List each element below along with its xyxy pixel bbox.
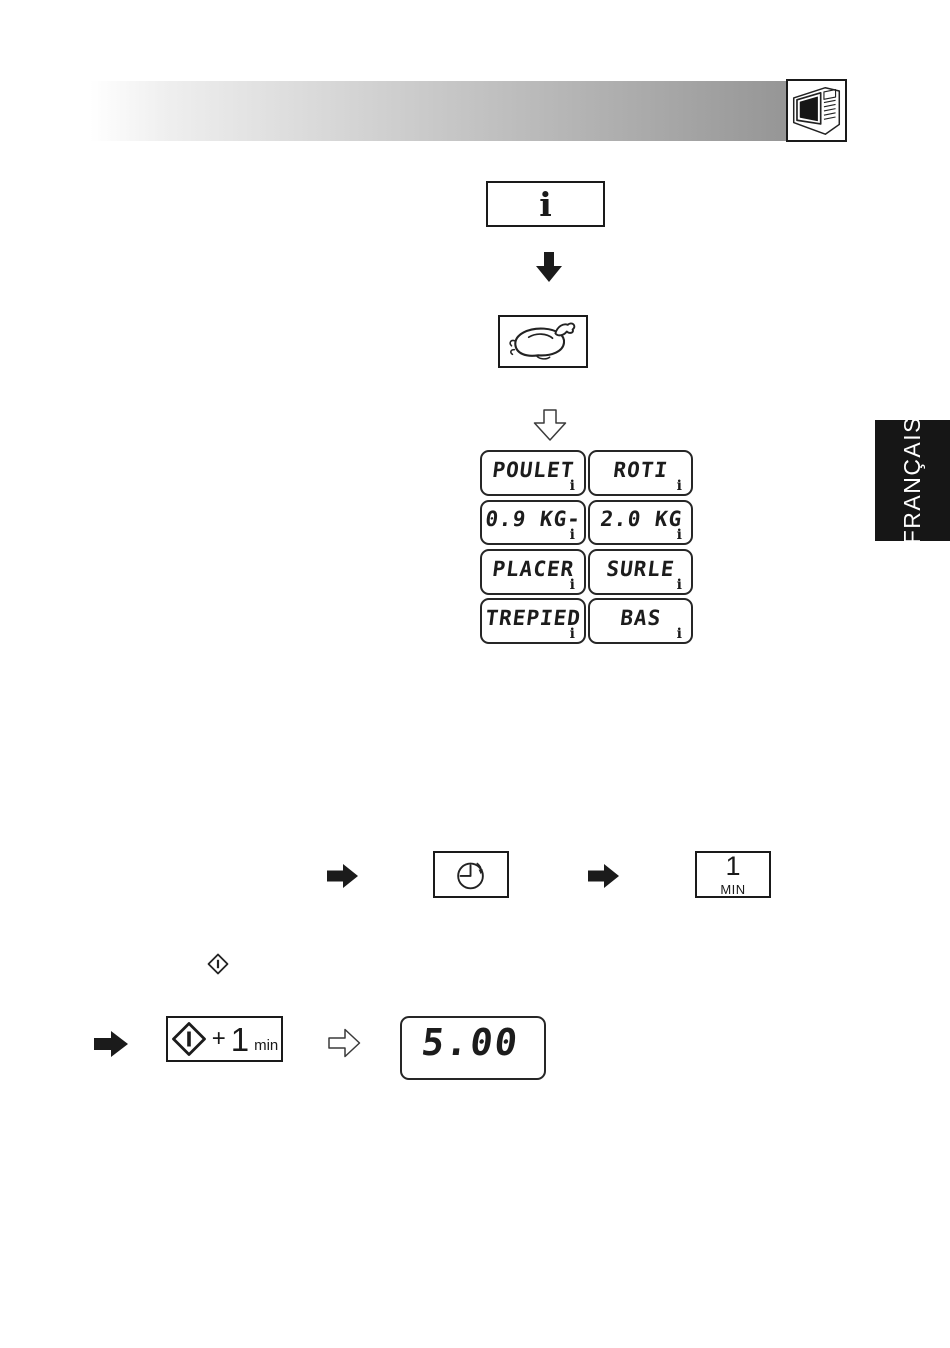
clock-icon — [452, 856, 490, 894]
lcd-text: TREPIED — [483, 606, 582, 637]
lcd-cell-weight-max: 2.0 KG i — [588, 500, 693, 545]
info-indicator: i — [677, 528, 682, 543]
info-indicator: i — [677, 578, 682, 593]
info-indicator: i — [570, 627, 575, 642]
microwave-icon — [790, 83, 843, 138]
one-min-unit: MIN — [720, 883, 745, 896]
lcd-text: POULET — [490, 458, 576, 489]
info-indicator: i — [570, 578, 575, 593]
roast-chicken-icon — [502, 318, 584, 365]
info-indicator: i — [677, 479, 682, 494]
lcd-text: PLACER — [490, 557, 576, 588]
lcd-cell-poulet: POULET i — [480, 450, 586, 496]
plus-amount: 1 — [231, 1023, 249, 1056]
time-display-box: 5.00 — [400, 1016, 546, 1080]
info-indicator: i — [570, 528, 575, 543]
timer-button-box — [433, 851, 509, 898]
lcd-text: SURLE — [604, 557, 676, 588]
lcd-cell-trepied: TREPIED i — [480, 598, 586, 644]
lcd-text: BAS — [618, 606, 663, 637]
start-diamond-icon — [207, 953, 229, 975]
lcd-text: 2.0 KG — [598, 507, 684, 538]
manual-page: i POULET i ROTI i 0.9 KG- — [0, 0, 950, 1348]
arrow-right-solid-icon — [94, 1031, 128, 1057]
microwave-icon-box — [786, 79, 847, 142]
lcd-text: ROTI — [611, 458, 669, 489]
arrow-down-outline-icon — [533, 409, 567, 441]
arrow-right-solid-icon — [327, 864, 358, 888]
roast-chicken-box — [498, 315, 588, 368]
plus-unit: min — [254, 1038, 278, 1057]
lcd-cell-placer: PLACER i — [480, 549, 586, 595]
language-tab-label: FRANÇAIS — [899, 416, 926, 544]
lcd-cell-surle: SURLE i — [588, 549, 693, 595]
header-gradient-bar — [90, 81, 847, 141]
info-button-box: i — [486, 181, 605, 227]
one-min-value: 1 — [725, 853, 740, 880]
arrow-right-solid-icon — [588, 864, 619, 888]
lcd-cell-roti: ROTI i — [588, 450, 693, 496]
arrow-down-solid-icon — [536, 252, 562, 282]
start-plus-one-min-button-box: + 1 min — [166, 1016, 283, 1062]
arrow-right-outline-icon — [328, 1028, 361, 1058]
plus-sign: + — [212, 1027, 226, 1051]
info-indicator: i — [570, 479, 575, 494]
lcd-cell-bas: BAS i — [588, 598, 693, 644]
time-display-value: 5.00 — [399, 1018, 522, 1064]
language-tab-francais: FRANÇAIS — [875, 420, 950, 541]
lcd-cell-weight-min: 0.9 KG- i — [480, 500, 586, 545]
start-diamond-icon — [171, 1021, 207, 1057]
one-min-button-box: 1 MIN — [695, 851, 771, 898]
info-indicator: i — [677, 627, 682, 642]
info-symbol: i — [539, 188, 552, 221]
lcd-text: 0.9 KG- — [483, 507, 582, 538]
